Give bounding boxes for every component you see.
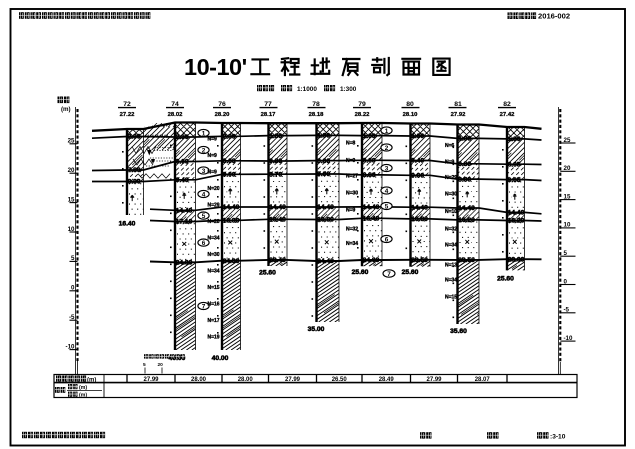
svg-text:7: 7 (387, 271, 391, 278)
svg-text:N=34: N=34 (445, 243, 457, 249)
svg-text:N=34: N=34 (445, 278, 457, 284)
svg-text:N=32: N=32 (346, 227, 358, 233)
svg-text:2.30: 2.30 (223, 134, 236, 141)
svg-text:2.30: 2.30 (176, 134, 189, 141)
svg-text:16.80: 16.80 (411, 216, 428, 223)
svg-text:35.00: 35.00 (308, 326, 325, 333)
svg-text:6.05: 6.05 (508, 161, 521, 168)
svg-text:24.30: 24.30 (223, 258, 240, 265)
svg-text:14.40: 14.40 (223, 204, 240, 211)
svg-text:23.50: 23.50 (411, 257, 428, 264)
svg-text:7: 7 (202, 303, 206, 310)
svg-text:9.05: 9.05 (508, 177, 521, 184)
svg-text:N=10: N=10 (445, 209, 457, 215)
svg-text:27.22: 27.22 (120, 112, 135, 118)
svg-text:16.40: 16.40 (363, 216, 380, 223)
svg-text:16.40: 16.40 (119, 221, 136, 228)
svg-text:28.10: 28.10 (403, 112, 418, 118)
svg-text:N=30: N=30 (445, 192, 457, 198)
svg-text:-5: -5 (69, 314, 75, 321)
svg-text:40.00: 40.00 (212, 355, 229, 362)
svg-text:N=9: N=9 (208, 170, 218, 176)
svg-text:(m): (m) (79, 385, 87, 391)
svg-text:28.49: 28.49 (379, 377, 395, 383)
svg-text:9.40: 9.40 (176, 177, 189, 184)
svg-text:25.60: 25.60 (259, 270, 276, 277)
svg-text:N=34: N=34 (208, 236, 220, 242)
svg-text:6.60: 6.60 (223, 158, 236, 165)
svg-text:N=17: N=17 (208, 318, 220, 324)
svg-text:28.18: 28.18 (309, 112, 324, 118)
svg-text:N=29: N=29 (208, 203, 220, 209)
svg-text:6.30: 6.30 (269, 158, 282, 165)
svg-text:8.30: 8.30 (458, 176, 471, 183)
svg-text:25: 25 (564, 137, 571, 144)
svg-text:8.70: 8.70 (269, 171, 282, 178)
svg-text:14.40: 14.40 (317, 204, 334, 211)
svg-text:4: 4 (202, 191, 206, 198)
svg-text:N=28: N=28 (208, 219, 220, 225)
svg-text:1.80: 1.80 (269, 133, 282, 140)
svg-text:5: 5 (564, 250, 568, 257)
svg-text:N=9: N=9 (346, 208, 356, 214)
svg-text:24.40: 24.40 (317, 258, 334, 265)
svg-text:14.40: 14.40 (508, 210, 525, 217)
svg-text:10-10': 10-10' (184, 54, 247, 80)
svg-text:16.80: 16.80 (317, 217, 334, 224)
svg-text:4: 4 (385, 188, 389, 195)
svg-text:1:300: 1:300 (340, 86, 357, 93)
svg-text:10: 10 (564, 222, 571, 229)
svg-text:N=6: N=6 (445, 143, 455, 149)
svg-text:6.60: 6.60 (317, 158, 330, 165)
svg-text:6.60: 6.60 (363, 158, 376, 165)
svg-text:(m): (m) (87, 378, 96, 384)
svg-text:N=32: N=32 (445, 227, 457, 233)
svg-text:25.60: 25.60 (402, 269, 419, 276)
svg-text:27.42: 27.42 (500, 112, 515, 118)
svg-text:6.60: 6.60 (176, 159, 189, 166)
svg-text:24.30: 24.30 (176, 260, 193, 267)
svg-text:N=19: N=19 (208, 335, 220, 341)
svg-text:35.60: 35.60 (450, 328, 467, 335)
svg-text:8.30: 8.30 (128, 179, 141, 186)
svg-text:17.10: 17.10 (176, 219, 193, 226)
svg-text:14.40: 14.40 (176, 208, 193, 215)
svg-text:3: 3 (385, 165, 389, 172)
svg-text:26.50: 26.50 (332, 377, 348, 383)
svg-text:N=9: N=9 (208, 153, 218, 159)
svg-text:7.80: 7.80 (128, 167, 141, 174)
svg-text:(m): (m) (61, 106, 71, 113)
svg-text:N=30: N=30 (208, 252, 220, 258)
svg-text:2: 2 (385, 145, 389, 152)
svg-text:N=9: N=9 (445, 160, 455, 166)
svg-text:5: 5 (385, 203, 389, 210)
svg-text:0: 0 (71, 285, 75, 292)
svg-text:14.40: 14.40 (411, 204, 428, 211)
svg-text:N=20: N=20 (208, 186, 220, 192)
svg-text:1: 1 (385, 128, 389, 135)
svg-text:28.22: 28.22 (355, 112, 370, 118)
svg-text::3-10: :3-10 (550, 433, 566, 440)
svg-text:N=29: N=29 (445, 175, 457, 181)
svg-text:2016-002: 2016-002 (538, 12, 570, 21)
svg-text:28.20: 28.20 (215, 112, 230, 118)
svg-text:1.80: 1.80 (317, 133, 330, 140)
svg-text:9.00: 9.00 (317, 171, 330, 178)
svg-text:0: 0 (564, 278, 568, 285)
svg-text:N=34: N=34 (208, 269, 220, 275)
svg-text:15: 15 (564, 193, 571, 200)
svg-text:16.20: 16.20 (508, 218, 525, 225)
svg-text:9.00: 9.00 (223, 172, 236, 179)
svg-text:5: 5 (202, 213, 206, 220)
svg-text:N=16: N=16 (208, 302, 220, 308)
svg-text:28.00: 28.00 (238, 377, 254, 383)
svg-text:-10: -10 (564, 335, 574, 342)
svg-text:6: 6 (385, 236, 389, 243)
svg-text:10: 10 (68, 226, 75, 233)
svg-text:N=13: N=13 (445, 263, 457, 269)
svg-text:1.60: 1.60 (411, 133, 424, 140)
svg-text:5: 5 (143, 362, 146, 368)
svg-text:20: 20 (68, 167, 75, 174)
svg-text:1.60: 1.60 (363, 133, 376, 140)
svg-text:14.40: 14.40 (458, 205, 475, 212)
svg-text:14.40: 14.40 (269, 204, 286, 211)
svg-text:25.60: 25.60 (497, 276, 514, 283)
svg-text:20: 20 (564, 165, 571, 172)
svg-text:14.40: 14.40 (363, 204, 380, 211)
svg-text:27.99: 27.99 (426, 377, 442, 383)
svg-text:2.30: 2.30 (128, 134, 141, 141)
svg-text:27.92: 27.92 (451, 112, 466, 118)
svg-text:16.20: 16.20 (458, 217, 475, 224)
svg-text:27.99: 27.99 (285, 377, 301, 383)
svg-text:N=15: N=15 (445, 295, 457, 301)
svg-text:N=30: N=30 (346, 191, 358, 197)
svg-text:1.80: 1.80 (508, 136, 521, 143)
svg-text:25: 25 (68, 138, 75, 145)
svg-text:1.80: 1.80 (458, 136, 471, 143)
svg-text:-10: -10 (66, 343, 76, 350)
svg-text:2: 2 (202, 147, 206, 154)
svg-text:N=9: N=9 (208, 137, 218, 143)
svg-text:16.40: 16.40 (269, 217, 286, 224)
svg-text:15: 15 (68, 196, 75, 203)
svg-text:28.02: 28.02 (168, 112, 183, 118)
svg-text:1: 1 (202, 130, 206, 137)
svg-text:N=9: N=9 (346, 158, 356, 164)
svg-text:(m): (m) (79, 393, 87, 399)
svg-text:N=8: N=8 (346, 141, 356, 147)
svg-text:N=34: N=34 (346, 241, 358, 247)
svg-text:9.00: 9.00 (411, 173, 424, 180)
svg-text:6.30: 6.30 (458, 161, 471, 168)
svg-text:1:1000: 1:1000 (297, 86, 317, 93)
svg-text:5: 5 (71, 255, 75, 262)
svg-text:28.17: 28.17 (261, 112, 276, 118)
svg-text:16.80: 16.80 (223, 218, 240, 225)
svg-text:25.60: 25.60 (352, 269, 369, 276)
svg-text:6.40: 6.40 (411, 158, 424, 165)
svg-text:23.00: 23.00 (508, 256, 525, 263)
svg-text:20: 20 (158, 362, 164, 368)
svg-text:-5: -5 (564, 307, 570, 314)
svg-text:23.40: 23.40 (269, 257, 286, 264)
svg-text:N=15: N=15 (208, 285, 220, 291)
svg-text:28.00: 28.00 (191, 377, 207, 383)
svg-text:N=27: N=27 (346, 174, 358, 180)
svg-text:3: 3 (202, 168, 206, 175)
svg-text:27.99: 27.99 (143, 377, 159, 383)
svg-text:28.07: 28.07 (475, 377, 491, 383)
svg-text:23.50: 23.50 (458, 257, 475, 264)
svg-text:24.00: 24.00 (363, 257, 380, 264)
svg-text:8.80: 8.80 (363, 172, 376, 179)
svg-text:6: 6 (202, 240, 206, 247)
